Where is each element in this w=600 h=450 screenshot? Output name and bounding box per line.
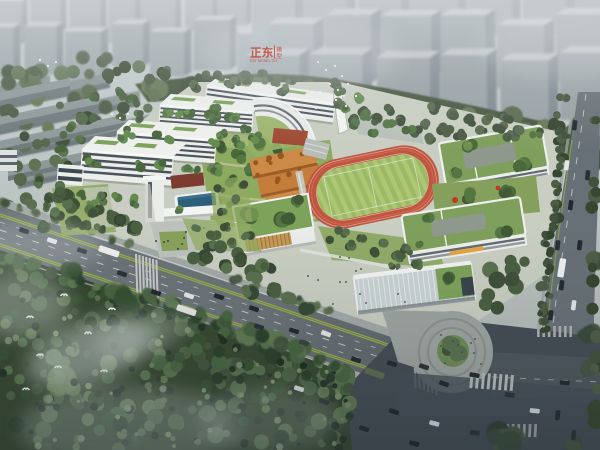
svg-text:模: 模 (277, 46, 283, 54)
svg-text:型: 型 (277, 52, 283, 60)
svg-text:EST MODEL CO: EST MODEL CO (250, 59, 277, 63)
svg-text:正东: 正东 (250, 46, 274, 60)
